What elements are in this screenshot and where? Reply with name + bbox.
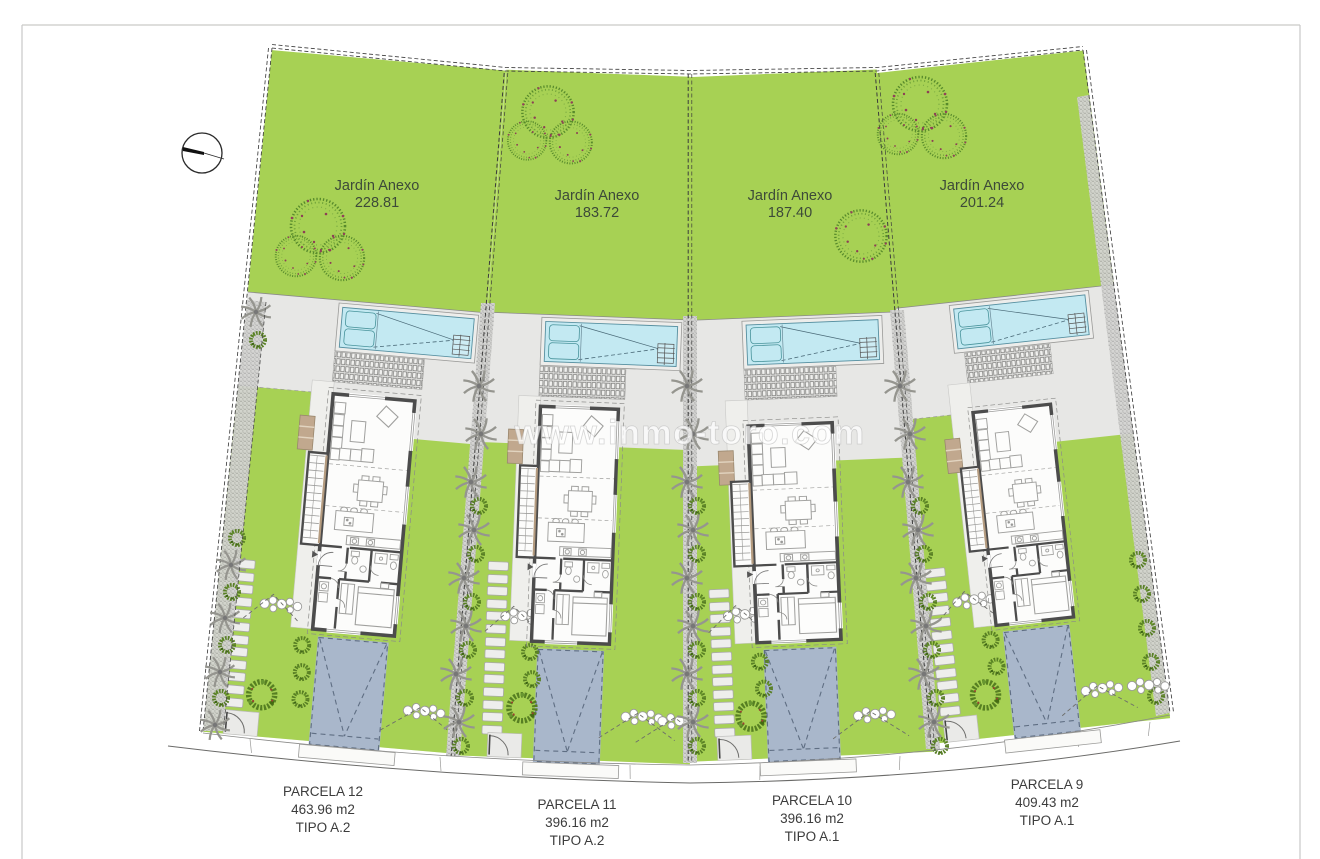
svg-text:Jardín Anexo: Jardín Anexo <box>940 178 1025 194</box>
svg-text:409.43 m2: 409.43 m2 <box>1015 795 1079 810</box>
svg-text:TIPO A.1: TIPO A.1 <box>785 829 840 844</box>
svg-text:PARCELA 9: PARCELA 9 <box>1011 777 1084 792</box>
svg-text:201.24: 201.24 <box>960 195 1004 211</box>
svg-text:Jardín Anexo: Jardín Anexo <box>748 188 833 204</box>
svg-text:396.16 m2: 396.16 m2 <box>545 815 609 830</box>
svg-text:183.72: 183.72 <box>575 205 619 221</box>
svg-text:PARCELA 10: PARCELA 10 <box>772 793 852 808</box>
svg-text:TIPO A.1: TIPO A.1 <box>1020 813 1075 828</box>
svg-text:463.96 m2: 463.96 m2 <box>291 802 355 817</box>
svg-text:TIPO A.2: TIPO A.2 <box>550 833 605 848</box>
svg-text:Jardín Anexo: Jardín Anexo <box>555 188 640 204</box>
svg-text:228.81: 228.81 <box>355 195 399 211</box>
svg-text:www.inmo-toro.com: www.inmo-toro.com <box>513 414 865 452</box>
svg-text:187.40: 187.40 <box>768 205 812 221</box>
svg-text:TIPO A.2: TIPO A.2 <box>296 820 351 835</box>
svg-text:Jardín Anexo: Jardín Anexo <box>335 178 420 194</box>
svg-text:PARCELA 12: PARCELA 12 <box>283 784 363 799</box>
svg-text:396.16 m2: 396.16 m2 <box>780 811 844 826</box>
svg-text:PARCELA 11: PARCELA 11 <box>537 797 616 812</box>
